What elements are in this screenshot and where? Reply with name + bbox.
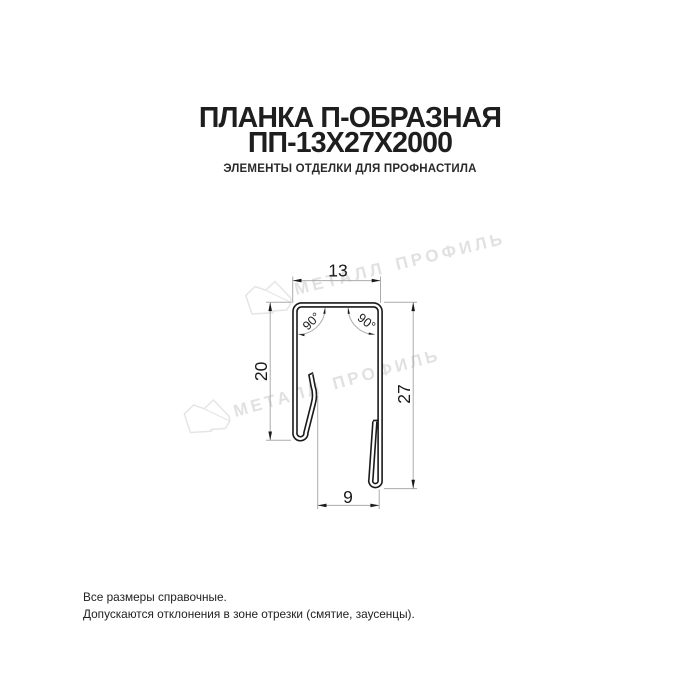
- svg-text:20: 20: [251, 361, 271, 381]
- svg-text:МЕТАЛЛ ПРОФИЛЬ: МЕТАЛЛ ПРОФИЛЬ: [231, 345, 442, 420]
- svg-text:МЕТАЛЛ ПРОФИЛЬ: МЕТАЛЛ ПРОФИЛЬ: [293, 229, 508, 299]
- svg-text:90°: 90°: [300, 310, 323, 333]
- svg-text:9: 9: [343, 487, 353, 507]
- svg-text:27: 27: [394, 384, 414, 403]
- svg-text:13: 13: [328, 260, 347, 280]
- svg-text:90°: 90°: [355, 311, 379, 334]
